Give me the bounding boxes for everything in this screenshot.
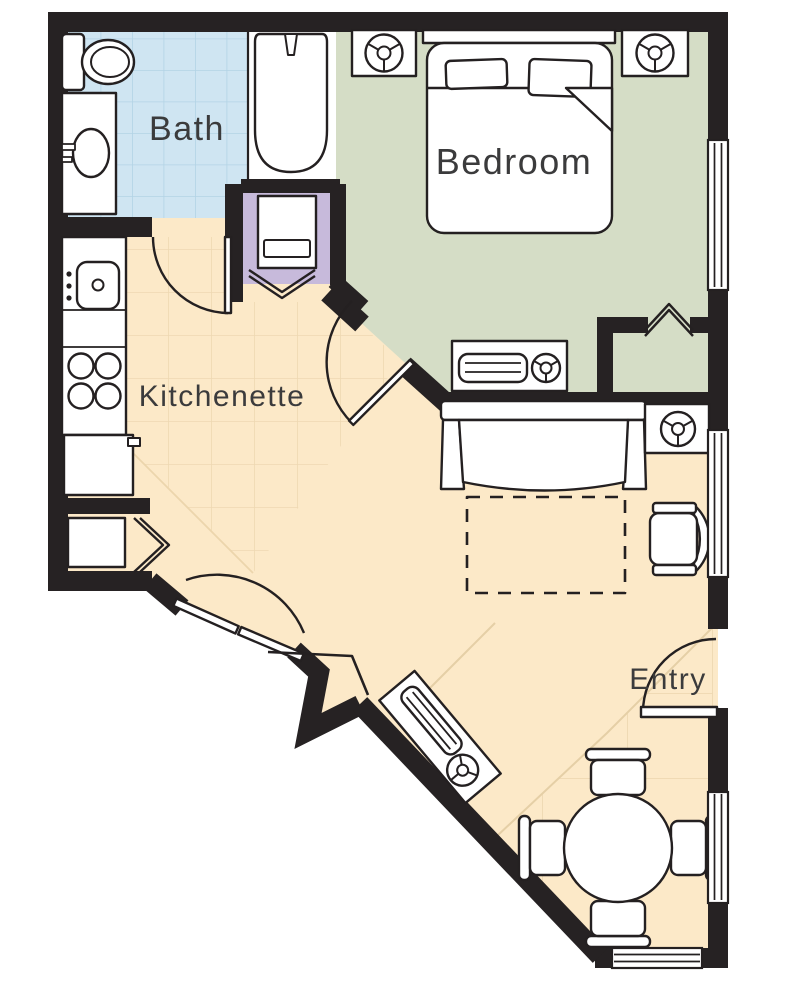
armchair — [650, 503, 710, 575]
dining-chair — [519, 816, 565, 880]
window-entry-side — [708, 792, 728, 903]
bath-label: Bath — [149, 110, 225, 148]
refrigerator — [64, 435, 140, 495]
bathtub — [255, 34, 327, 172]
dresser-tv — [452, 341, 567, 391]
dining-chair — [586, 749, 650, 795]
headboard — [423, 30, 615, 43]
entry-label: Entry — [629, 663, 707, 696]
bedroom-label: Bedroom — [436, 141, 593, 182]
window-living — [708, 430, 728, 577]
bed — [427, 43, 612, 233]
window-bedroom — [708, 140, 728, 290]
dining-table — [564, 794, 672, 902]
window-entry-bottom — [612, 948, 702, 968]
washer — [258, 196, 316, 268]
vanity-sink — [62, 93, 116, 214]
dining-chair — [586, 901, 650, 947]
closet-shelf — [68, 518, 125, 567]
floor-plan: Bath Bedroom Kitchenette Entry — [0, 0, 786, 1000]
floor-plan-svg: Bath Bedroom Kitchenette Entry — [0, 0, 786, 1000]
corner-table-lamp — [645, 404, 709, 453]
nightstand-left — [352, 30, 416, 76]
kitchenette-label: Kitchenette — [139, 380, 306, 413]
sofa — [441, 401, 646, 491]
nightstand-right — [622, 30, 688, 76]
